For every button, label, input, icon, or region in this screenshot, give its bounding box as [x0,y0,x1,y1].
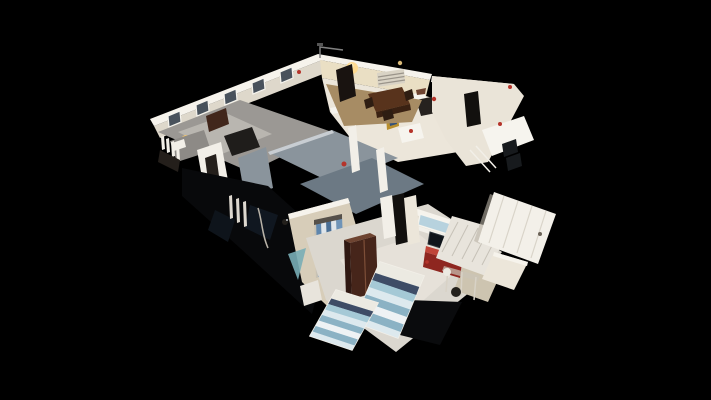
red-alarm-dot [297,70,301,74]
red-object [342,162,347,167]
red-alarm-dot [409,129,413,133]
floor-lamp-globe [443,268,451,276]
viewer-stage [0,0,711,400]
red-object [425,260,429,264]
antenna-base [317,43,323,46]
door-handle [538,232,542,236]
red-alarm-dot [508,85,512,89]
red-alarm-dot [498,122,502,126]
wall-sconce [398,61,402,65]
office-chair [451,287,461,297]
dark-doorway [464,91,481,127]
red-alarm-dot [432,97,436,101]
dollhouse-3d-view[interactable] [0,0,711,400]
